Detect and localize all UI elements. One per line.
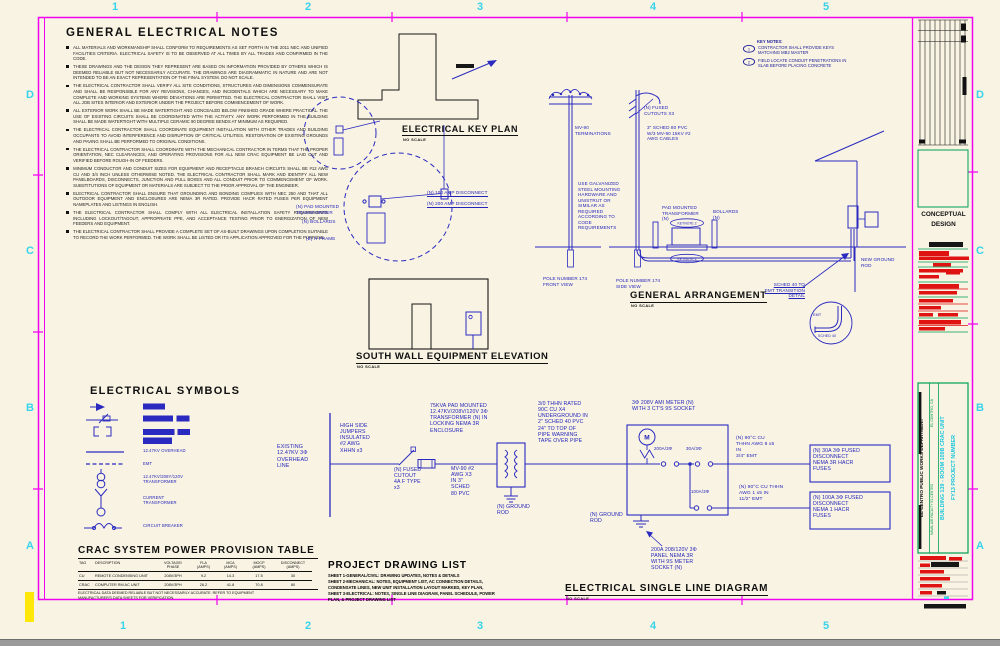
symbol-label-circuit-breaker: CIRCUIT BREAKER <box>143 523 183 528</box>
label-high-side-jumpers: HIGH SIDE JUMPERS INSULATED #2 AWG XHHN … <box>340 423 370 454</box>
note-text: THE ELECTRICAL CONTRACTOR SHALL COMPLY W… <box>73 210 328 227</box>
note-text: ALL EXTERIOR WORK SHALL BE MADE WATERTIG… <box>73 108 328 125</box>
redacted-revision-text <box>919 251 969 331</box>
keynote-2-callout-bottom: KEYNOTE 2 <box>677 257 696 261</box>
cyan-tick <box>944 597 949 600</box>
grid-col-1-bottom: 1 <box>115 620 131 632</box>
note-bullet-icon <box>66 65 69 68</box>
crac-table: TAG DESCRIPTION VOLTAGE/ PHASE FLA (AMPS… <box>78 558 318 590</box>
label-breaker-100a: 100A/3Φ <box>691 489 709 494</box>
grid-row-b-left: B <box>22 402 38 414</box>
label-disconnect-30a: (N) 30A 3Φ FUSED DISCONNECT NEMA 3R HACR… <box>813 448 860 473</box>
table-cell: CRAC <box>78 581 94 589</box>
key-plan-title: ELECTRICAL KEY PLAN <box>402 124 518 136</box>
keynote-1-number: 1 <box>748 46 751 51</box>
label-ami-meter: 3Φ 208V AMI METER (N) WITH 3 CT'S 9S SOC… <box>632 400 695 412</box>
grid-col-4-top: 4 <box>645 1 661 13</box>
grid-col-3-bottom: 3 <box>472 620 488 632</box>
key-notes-title: KEY NOTES: <box>757 39 783 44</box>
grid-row-b-right: B <box>972 402 988 414</box>
symbol-label-current-transformer: CURRENT TRANSFORMER <box>143 495 177 505</box>
table-cell: 70.8 <box>244 581 274 589</box>
note-text: THE ELECTRICAL CONTRACTOR SHALL PROVIDE … <box>73 229 328 240</box>
table-cell: 80 <box>274 581 312 589</box>
symbol-fused-cutout-icon <box>86 414 118 423</box>
note-item: THESE DRAWINGS AND THE DESIGN THEY REPRE… <box>66 64 328 81</box>
note-item: THE ELECTRICAL CONTRACTOR SHALL COORDINA… <box>66 127 328 144</box>
drawing-list-section: PROJECT DRAWING LIST SHEET 1-GENERAL/CIV… <box>328 560 566 603</box>
col-header: VOLTAGE/ PHASE <box>156 559 190 572</box>
key-note-2: FIELD LOCATE CONDUIT PENETRATIONS IN SLA… <box>758 58 846 69</box>
table-cell: 17.5 <box>244 572 274 581</box>
symbols-glyphs <box>84 403 190 530</box>
label-underground-feeder: 3/0 THHN RATED 90C CU X4 UNDERGROUND IN … <box>538 401 588 444</box>
label-h-frame: (E) H FRAME <box>306 236 335 242</box>
label-pvc-cables: 3" SCHED 80 PVC W/3 MV-90 15KV #2 AWG CA… <box>647 125 691 142</box>
drawing-sheet: 1 2 <box>0 0 1000 646</box>
label-mv90-cable: MV-90 #2 AWG X3 IN 3" SCHED 80 PVC <box>451 466 474 497</box>
label-fused-cutouts: (N) FUSED CUTOUTS X3 <box>644 105 674 116</box>
title-block-location: EL CENTRO, CA <box>930 388 938 438</box>
label-disconnect-100a: (N) 100A 3Φ FUSED DISCONNECT NEMA 1 HACR… <box>813 495 863 520</box>
note-bullet-icon <box>66 211 69 214</box>
note-item: ELECTRICAL CONTRACTOR SHALL ENSURE THAT … <box>66 191 328 208</box>
symbol-label-overhead: 12.47KV OVERHEAD <box>143 448 186 453</box>
symbol-circuit-breaker-icon <box>84 524 122 530</box>
conceptual-design-bar <box>929 242 963 247</box>
drawing-list-title: PROJECT DRAWING LIST <box>328 560 566 571</box>
table-cell: 14.3 <box>217 572 244 581</box>
note-bullet-icon <box>66 230 69 233</box>
table-cell: 41.8 <box>217 581 244 589</box>
general-notes-list: ALL MATERIALS AND WORKMANSHIP SHALL CONF… <box>66 45 328 378</box>
note-text: THE ELECTRICAL CONTRACTOR SHALL VERIFY A… <box>73 83 328 105</box>
conceptual-design-stage: CONCEPTUAL DESIGN <box>915 210 972 229</box>
yellow-highlight-marker <box>25 592 34 622</box>
symbol-arrow-icon <box>90 403 105 411</box>
col-header: DESCRIPTION <box>94 559 156 572</box>
label-panel: 200A 208/120V 3Φ PANEL NEMA 3R WITH 9S M… <box>651 547 697 572</box>
label-fused-cutout: (N) FUSED CUTOUT 4A F TYPE x3 <box>394 467 421 492</box>
grid-row-c-left: C <box>22 245 38 257</box>
label-breaker-200a: 200A/3Φ <box>654 446 672 451</box>
note-item: THE ELECTRICAL CONTRACTOR SHALL COMPLY W… <box>66 210 328 227</box>
label-mounting-hardware: USE GALVANIZED STEEL MOUNTING HARDWARE A… <box>578 181 620 231</box>
label-pad-transformer-sld: 75KVA PAD MOUNTED 12.47KV/208V/120V 3Φ T… <box>430 403 488 434</box>
note-item: THE ELECTRICAL CONTRACTOR SHALL COORDINA… <box>66 147 328 164</box>
label-breaker-30a: 30A/3Φ <box>686 446 702 451</box>
grid-row-a-right: A <box>972 540 988 552</box>
general-arrangement-scale: NO SCALE <box>631 303 654 308</box>
label-sched40-detail: SCHED 40 <box>818 334 836 338</box>
grid-col-5-bottom: 5 <box>818 620 834 632</box>
col-header: FLA (AMPS) <box>190 559 217 572</box>
label-new-ground-rod: NEW GROUND ROD <box>861 257 895 268</box>
table-cell: CU <box>78 572 94 581</box>
col-header: TAG <box>78 559 94 572</box>
note-text: ELECTRICAL CONTRACTOR SHALL ENSURE THAT … <box>73 191 328 208</box>
south-wall-scale: NO SCALE <box>357 364 380 369</box>
key-plan-drawing <box>304 34 497 261</box>
note-text: THE ELECTRICAL CONTRACTOR SHALL COORDINA… <box>73 127 328 144</box>
grid-row-d-right: D <box>972 89 988 101</box>
note-text: THESE DRAWINGS AND THE DESIGN THEY REPRE… <box>73 64 328 81</box>
title-block-project-line1: BUILDING 139 - ROOM 109B CRAC UNIT <box>940 386 950 550</box>
single-line-scale: NO SCALE <box>566 596 589 601</box>
note-bullet-icon <box>66 192 69 195</box>
grid-row-d-left: D <box>22 89 38 101</box>
stamp-box <box>918 150 968 207</box>
crac-table-title: CRAC SYSTEM POWER PROVISION TABLE <box>78 545 318 556</box>
note-item: MINIMUM CONDUCTOR AND CONDUIT SIZES FOR … <box>66 166 328 188</box>
note-bullet-icon <box>66 129 69 132</box>
table-cell: 208V/3PH <box>156 581 190 589</box>
grid-row-c-right: C <box>972 245 988 257</box>
grid-col-1-top: 1 <box>107 1 123 13</box>
note-text: MINIMUM CONDUCTOR AND CONDUIT SIZES FOR … <box>73 166 328 188</box>
label-pole-side-view: POLE NUMBER 174 SIDE VIEW <box>616 278 660 289</box>
label-ground-rod-right: (N) GROUND ROD <box>590 512 623 524</box>
label-ground-rod-left: (N) GROUND ROD <box>497 504 530 516</box>
note-bullet-icon <box>66 109 69 112</box>
label-ga-bollards: BOLLARDS (N) <box>713 209 738 220</box>
note-bullet-icon <box>66 85 69 88</box>
title-block-project-line2: FY13 PROJECT NUMBER <box>951 386 961 550</box>
title-block-department: EL CENTRO PUBLIC WORKS DEPARTMENT <box>919 386 930 550</box>
grid-row-a-left: A <box>22 540 38 552</box>
keynote-2-callout-top: KEYNOTE 2 <box>677 222 696 226</box>
label-existing-overhead-line: EXISTING 12.47KV 3Φ OVERHEAD LINE <box>277 444 308 470</box>
label-mv90-terminations: MV-90 TERMINATIONS <box>575 125 611 136</box>
label-ga-pad-transformer: PAD MOUNTED TRANSFORMER (N) <box>662 205 699 222</box>
single-line-title: ELECTRICAL SINGLE LINE DIAGRAM <box>565 583 768 596</box>
note-item: ALL MATERIALS AND WORKMANSHIP SHALL CONF… <box>66 45 328 62</box>
grid-col-2-top: 2 <box>300 1 316 13</box>
label-100amp-disconnect: (N) 100 AMP DISCONNECT <box>427 190 488 197</box>
south-wall-drawing <box>369 279 488 349</box>
symbol-meter-socket-icon <box>94 427 111 436</box>
grid-col-2-bottom: 2 <box>300 620 316 632</box>
table-cell: REMOTE CONDENSING UNIT <box>94 572 156 581</box>
label-wire-100a: (N) 90°C CU THHN AWG 1 x5 IN 11/2" EMT <box>739 485 783 503</box>
table-cell: 26.2 <box>190 581 217 589</box>
label-pole-front-view: POLE NUMBER 174 FRONT VIEW <box>543 276 587 287</box>
table-cell: 208V/3PH <box>156 572 190 581</box>
south-wall-title: SOUTH WALL EQUIPMENT ELEVATION <box>356 351 548 364</box>
general-notes-title: GENERAL ELECTRICAL NOTES <box>66 27 279 39</box>
symbol-label-emt: EMT <box>143 461 152 466</box>
table-cell: COMPUTER RM AC UNIT <box>94 581 156 589</box>
drawing-list-line: PLAN, & PROJECT DRAWING LIST <box>328 597 566 603</box>
meter-letter: M <box>644 435 649 442</box>
crac-table-note: ELECTRICAL DATA DEEMED RELIABLE BUT NOT … <box>78 591 318 601</box>
table-cell: 9.2 <box>190 572 217 581</box>
note-item: ALL EXTERIOR WORK SHALL BE MADE WATERTIG… <box>66 108 328 125</box>
grid-col-5-top: 5 <box>818 1 834 13</box>
note-bullet-icon <box>66 167 69 170</box>
screen-bottom-strip <box>0 639 1000 646</box>
note-text: ALL MATERIALS AND WORKMANSHIP SHALL CONF… <box>73 45 328 62</box>
grid-col-3-top: 3 <box>472 1 488 13</box>
col-header: DISCONNECT (AMPS) <box>274 559 312 572</box>
label-bollards: (N) BOLLARDS <box>302 219 336 225</box>
symbol-transformer-icon <box>97 469 105 488</box>
keynote-2-number: 2 <box>748 59 751 64</box>
symbol-redacted-labels <box>143 404 190 445</box>
title-block-facility: NAVAL AIR FACILITY EL CENTRO <box>930 466 938 552</box>
key-plan-scale: NO SCALE <box>403 137 426 142</box>
key-note-1: CONTRACTOR SHALL PROVIDE KEYS MATCHING M… <box>758 45 834 56</box>
col-header: MCA (AMPS) <box>217 559 244 572</box>
label-200amp-disconnect: (N) 200 AMP DISCONNECT <box>427 201 488 208</box>
grid-col-4-bottom: 4 <box>645 620 661 632</box>
label-pad-mounted-transformer: (N) PAD MOUNTED TRANSFORMER <box>296 204 339 215</box>
label-emt-detail: EMT <box>813 313 821 318</box>
note-item: THE ELECTRICAL CONTRACTOR SHALL PROVIDE … <box>66 229 328 240</box>
note-text: THE ELECTRICAL CONTRACTOR SHALL COORDINA… <box>73 147 328 164</box>
col-header: MOCP (AMPS) <box>244 559 274 572</box>
table-cell: 30 <box>274 572 312 581</box>
key-notes-icons: 1 2 <box>743 45 754 65</box>
symbols-title: ELECTRICAL SYMBOLS <box>90 385 240 397</box>
below-border-bar <box>924 604 966 609</box>
symbol-label-transformer: 12.47KV/208Y/120V TRANSFORMER <box>143 474 183 484</box>
general-arrangement-title: GENERAL ARRANGEMENT <box>630 290 767 303</box>
label-wire-30a: (N) 90°C CU THHN AWG 8 x5 IN 3/4" EMT <box>736 436 774 460</box>
note-item: THE ELECTRICAL CONTRACTOR SHALL VERIFY A… <box>66 83 328 105</box>
crac-table-section: CRAC SYSTEM POWER PROVISION TABLE TAG DE… <box>78 545 318 601</box>
note-bullet-icon <box>66 46 69 49</box>
note-bullet-icon <box>66 148 69 151</box>
symbol-current-transformer-icon <box>95 489 107 516</box>
revision-row-lines-green <box>918 249 968 332</box>
